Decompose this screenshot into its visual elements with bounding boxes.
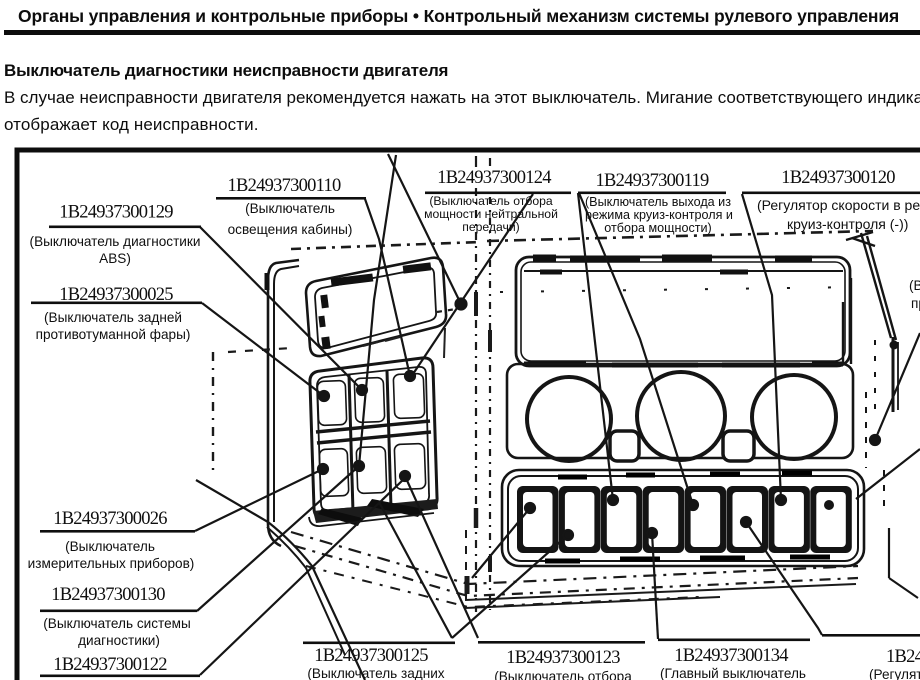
svg-text:1В24937300123: 1В24937300123	[506, 648, 620, 668]
svg-text:(Выключатель задней: (Выключатель задней	[44, 310, 182, 325]
svg-text:режима круиз-контроля и: режима круиз-контроля и	[585, 208, 733, 222]
svg-text:1В24937300120: 1В24937300120	[781, 168, 895, 188]
svg-text:приборов): приборов)	[911, 296, 920, 311]
svg-text:(Выключатель отбора: (Выключатель отбора	[429, 194, 553, 208]
svg-text:1В24937300124: 1В24937300124	[437, 168, 551, 188]
svg-text:(Выключатель: (Выключатель	[245, 201, 335, 216]
svg-text:(Регулятор скорости в режиме: (Регулятор скорости в режиме	[757, 197, 920, 213]
svg-text:1В24937300134: 1В24937300134	[674, 646, 788, 666]
svg-text:ABS): ABS)	[99, 251, 131, 266]
svg-text:противотуманной фары): противотуманной фары)	[36, 327, 191, 342]
svg-text:(Выключатель выхода из: (Выключатель выхода из	[585, 195, 731, 209]
svg-text:(Регулятор: (Регулятор	[869, 667, 920, 680]
svg-text:1В24937300: 1В24937300	[886, 647, 920, 667]
svg-text:(Выключатель: (Выключатель	[909, 278, 920, 293]
svg-text:освещения кабины): освещения кабины)	[228, 222, 353, 237]
svg-text:диагностики): диагностики)	[78, 633, 160, 648]
svg-text:(Выключатель системы: (Выключатель системы	[43, 616, 191, 631]
svg-text:1В24937300110: 1В24937300110	[228, 176, 341, 196]
svg-text:измерительных приборов): измерительных приборов)	[28, 556, 195, 571]
svg-text:передачи): передачи)	[462, 220, 520, 234]
svg-text:круиз-контроля (-)): круиз-контроля (-))	[787, 216, 908, 232]
svg-text:(Главный выключатель: (Главный выключатель	[660, 666, 806, 680]
svg-text:(Выключатель отбора: (Выключатель отбора	[494, 669, 632, 680]
svg-text:1В24937300119: 1В24937300119	[596, 171, 709, 191]
svg-text:1В24937300129: 1В24937300129	[59, 203, 173, 223]
svg-text:(Выключатель задних: (Выключатель задних	[307, 666, 444, 680]
svg-text:1В24937300026: 1В24937300026	[53, 509, 167, 529]
svg-text:1В24937300130: 1В24937300130	[51, 585, 165, 605]
svg-text:отбора мощности): отбора мощности)	[604, 221, 712, 235]
svg-text:(Выключатель: (Выключатель	[65, 539, 155, 554]
svg-text:1В24937300122: 1В24937300122	[53, 655, 167, 675]
svg-text:(Выключатель диагностики: (Выключатель диагностики	[30, 234, 201, 249]
svg-text:мощности нейтральной: мощности нейтральной	[424, 207, 558, 221]
svg-text:1В24937300125: 1В24937300125	[314, 646, 428, 666]
